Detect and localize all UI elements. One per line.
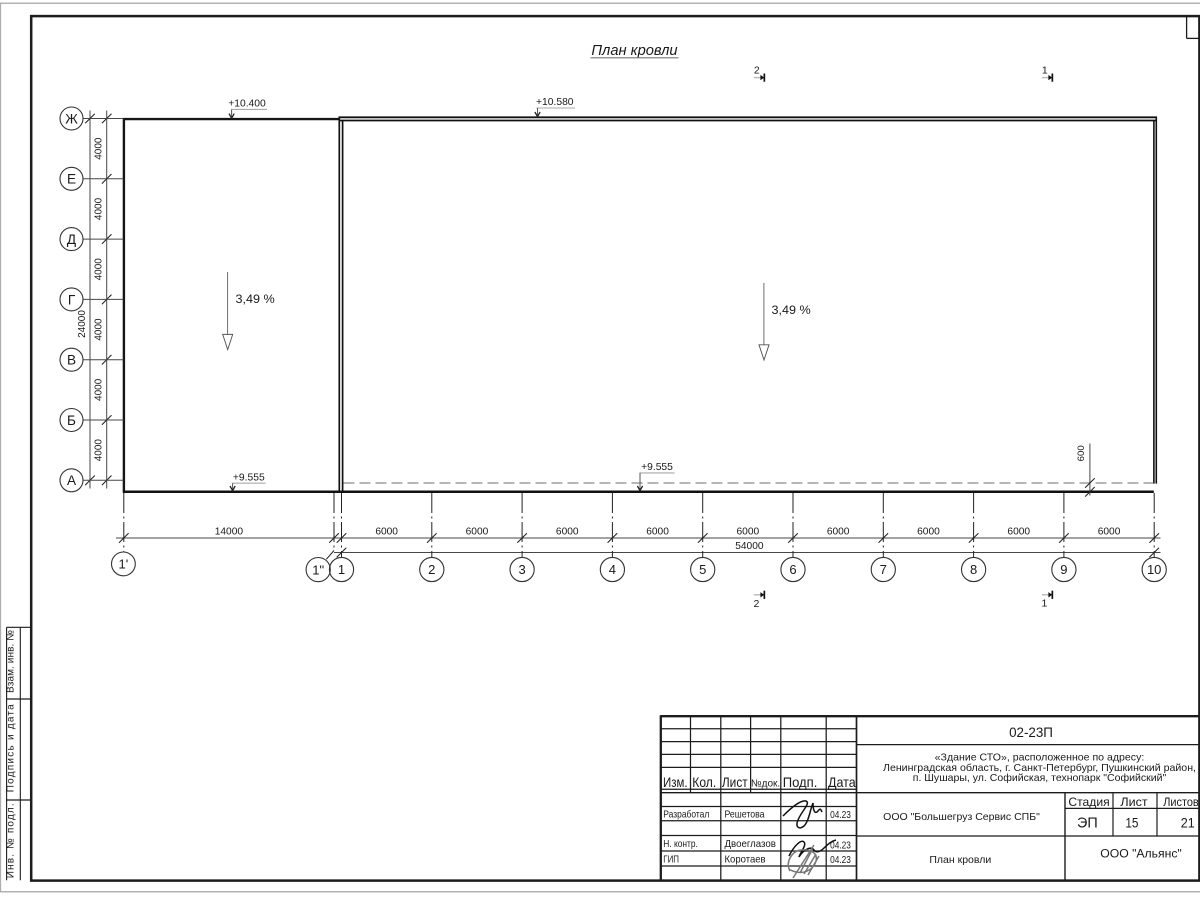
svg-text:6000: 6000: [1007, 527, 1030, 538]
svg-text:+9.555: +9.555: [233, 472, 265, 483]
svg-text:6000: 6000: [1098, 527, 1121, 538]
svg-text:«Здание СТО», расположенное по: «Здание СТО», расположенное по адресу:: [935, 752, 1145, 763]
svg-text:6000: 6000: [466, 527, 489, 538]
svg-text:6000: 6000: [375, 527, 398, 538]
svg-text:Подпись и дата: Подпись и дата: [6, 704, 17, 792]
svg-text:6000: 6000: [556, 527, 579, 538]
svg-text:14000: 14000: [215, 527, 244, 538]
svg-text:ГИП: ГИП: [663, 854, 679, 865]
svg-text:6000: 6000: [827, 527, 850, 538]
svg-text:Д: Д: [67, 232, 76, 247]
svg-text:02-23П: 02-23П: [1009, 725, 1053, 740]
svg-text:10: 10: [1147, 562, 1161, 577]
svg-text:Решетова: Решетова: [725, 810, 765, 821]
svg-text:ООО "Большегруз Сервис СПБ": ООО "Большегруз Сервис СПБ": [883, 811, 1040, 823]
svg-text:54000: 54000: [735, 541, 764, 552]
svg-text:6: 6: [789, 562, 796, 577]
svg-text:4000: 4000: [93, 318, 104, 341]
svg-text:4000: 4000: [93, 137, 104, 160]
svg-text:Б: Б: [67, 413, 76, 428]
svg-text:п. Шушары, ул. Софийская, техн: п. Шушары, ул. Софийская, технопарк "Соф…: [913, 772, 1167, 784]
svg-text:1: 1: [1041, 598, 1047, 610]
svg-text:ЭП: ЭП: [1077, 815, 1098, 831]
svg-text:4000: 4000: [93, 378, 104, 401]
svg-text:04.23: 04.23: [830, 855, 851, 866]
svg-text:Лист: Лист: [1120, 795, 1148, 809]
svg-text:Инв. № подл.: Инв. № подл.: [6, 803, 17, 878]
svg-text:План кровли: План кровли: [591, 43, 677, 59]
svg-text:Н. контр.: Н. контр.: [663, 839, 698, 850]
svg-text:3,49 %: 3,49 %: [772, 303, 812, 317]
svg-text:600: 600: [1076, 445, 1087, 461]
svg-text:Г: Г: [68, 292, 76, 307]
svg-text:3: 3: [518, 562, 525, 577]
svg-text:План кровли: План кровли: [929, 854, 991, 866]
svg-text:2: 2: [753, 598, 759, 610]
svg-text:1': 1': [119, 557, 129, 572]
svg-text:21: 21: [1181, 815, 1195, 831]
svg-text:04.23: 04.23: [830, 810, 851, 821]
svg-text:Листов: Листов: [1163, 795, 1199, 809]
svg-text:№док.: №док.: [751, 779, 780, 790]
svg-text:Разработал: Разработал: [663, 809, 709, 821]
svg-text:Изм.: Изм.: [663, 774, 688, 790]
svg-text:Ж: Ж: [65, 111, 78, 126]
svg-text:Подп.: Подп.: [783, 774, 818, 790]
svg-text:9: 9: [1060, 562, 1067, 577]
svg-text:15: 15: [1125, 815, 1138, 831]
svg-text:4: 4: [609, 562, 616, 577]
svg-text:2: 2: [754, 65, 760, 77]
svg-text:А: А: [67, 473, 77, 488]
svg-text:6000: 6000: [917, 527, 940, 538]
svg-text:3,49 %: 3,49 %: [236, 292, 276, 306]
svg-text:Дата: Дата: [828, 774, 856, 790]
svg-text:Лист: Лист: [722, 774, 748, 790]
svg-text:В: В: [67, 353, 76, 368]
svg-text:+9.555: +9.555: [641, 462, 673, 473]
svg-text:Коротаев: Коротаев: [725, 854, 767, 865]
svg-text:4000: 4000: [93, 439, 104, 462]
svg-text:1": 1": [312, 562, 324, 577]
svg-text:Кол.: Кол.: [692, 774, 716, 790]
svg-text:04.23: 04.23: [830, 841, 851, 852]
svg-text:Взам. инв. №: Взам. инв. №: [6, 630, 17, 693]
svg-text:6000: 6000: [646, 527, 669, 538]
svg-text:4000: 4000: [93, 258, 104, 281]
svg-text:+10.400: +10.400: [228, 99, 266, 110]
svg-text:5: 5: [699, 562, 706, 577]
svg-text:1: 1: [338, 562, 345, 577]
svg-text:6000: 6000: [737, 527, 760, 538]
svg-text:2: 2: [428, 562, 435, 577]
svg-text:ООО "Альянс": ООО "Альянс": [1100, 846, 1182, 860]
svg-text:+10.580: +10.580: [536, 97, 574, 108]
svg-text:Е: Е: [67, 172, 76, 187]
svg-text:7: 7: [880, 562, 887, 577]
svg-text:8: 8: [970, 562, 977, 577]
svg-text:Стадия: Стадия: [1068, 795, 1109, 809]
svg-text:1: 1: [1042, 65, 1048, 77]
svg-text:24000: 24000: [77, 310, 88, 338]
svg-text:Двоеглазов: Двоеглазов: [725, 839, 777, 850]
svg-text:4000: 4000: [93, 197, 104, 220]
